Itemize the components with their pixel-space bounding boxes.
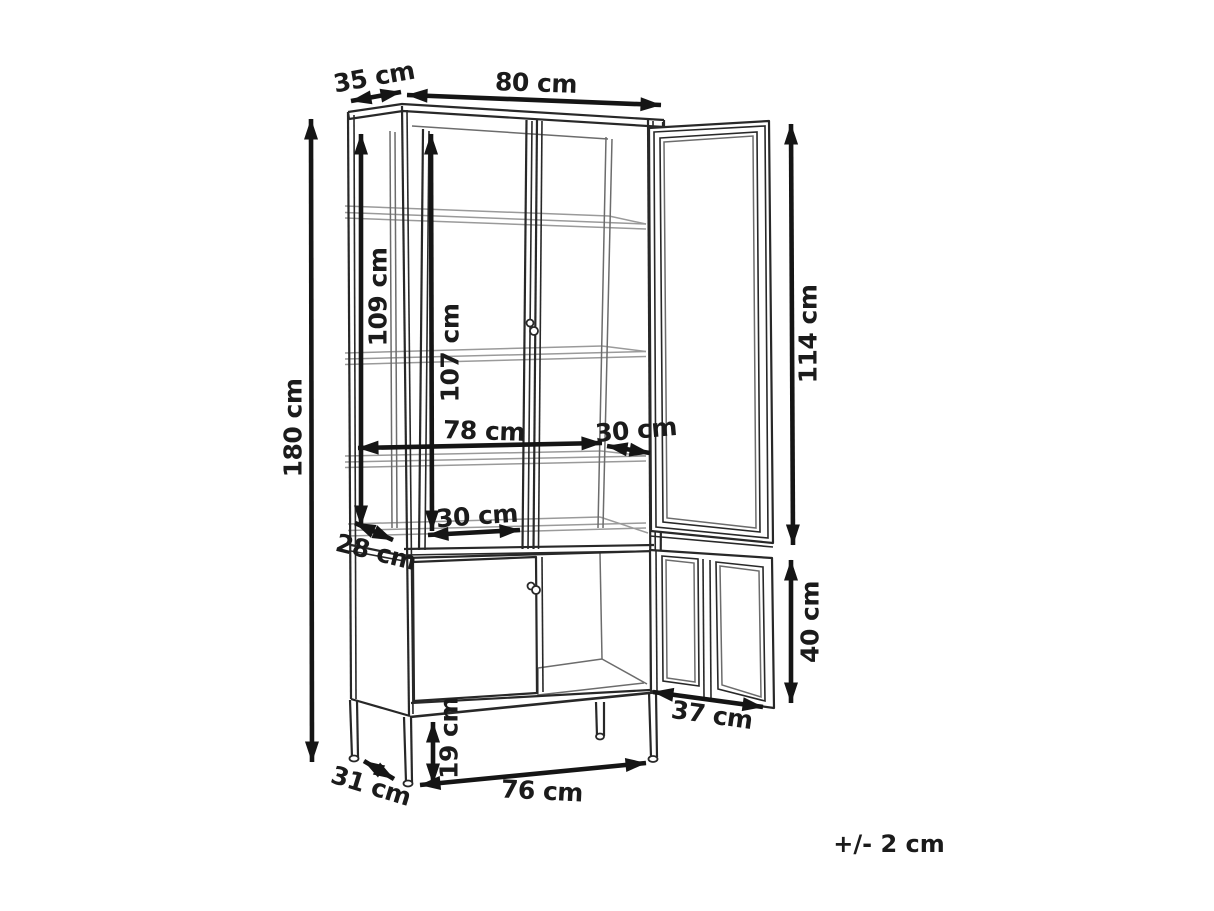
upper-handle-knob [527,320,534,327]
dim-label-base-depth: 31 cm [328,760,415,812]
upper-handle-knob [530,327,538,335]
dim-label-glass-door-height: 114 cm [794,285,823,384]
dim-label-leg-height: 19 cm [435,697,464,779]
upper-glass-door-open [649,121,773,547]
legs [350,692,658,787]
dim-label-total-height: 180 cm [279,379,308,478]
dim-label-base-width: 76 cm [500,774,583,807]
technical-drawing-page: 35 cm 80 cm 180 cm 109 cm 107 cm 114 cm … [0,0,1214,911]
dim-label-glass-side-height: 109 cm [364,248,393,347]
dim-label-top-depth: 35 cm [331,56,417,99]
cabinet-dimension-diagram: 35 cm 80 cm 180 cm 109 cm 107 cm 114 cm … [0,0,1214,911]
leg-foot [596,734,604,740]
dim-label-shelf-depth-left: 30 cm [435,499,519,534]
dim-label-glass-front-height: 107 cm [436,304,465,403]
leg-foot [350,756,359,762]
dim-arrow-glass-front-height [431,134,432,531]
leg-foot [649,756,658,762]
lower-handle-knob [532,586,540,594]
dim-label-top-width: 80 cm [495,67,578,99]
lower-doors-open [650,550,774,708]
dim-label-interior-width: 78 cm [443,415,526,447]
tolerance-note: +/- 2 cm [833,830,944,858]
dim-arrow-total-height [311,119,312,762]
dim-label-lower-door-height: 40 cm [796,581,825,663]
